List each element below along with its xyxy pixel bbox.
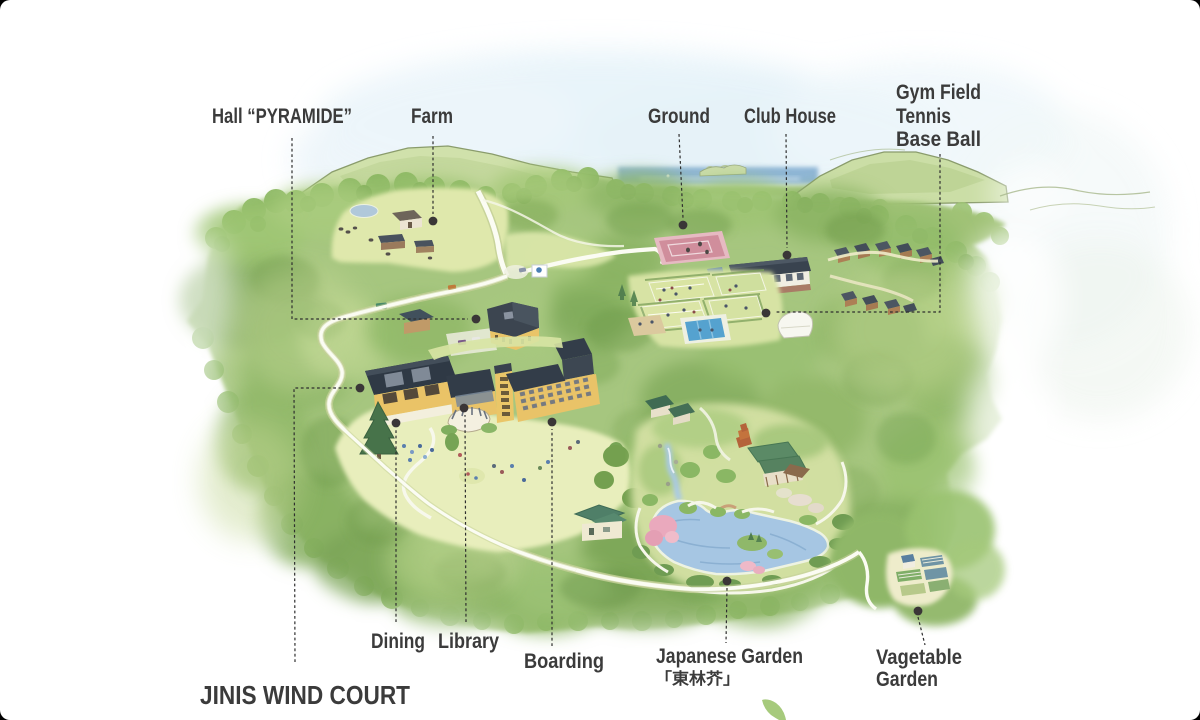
svg-text:Tennis: Tennis — [896, 105, 951, 128]
svg-text:Vagetable: Vagetable — [876, 646, 962, 669]
svg-text:JINIS WIND COURT: JINIS WIND COURT — [200, 680, 410, 710]
svg-text:Library: Library — [438, 630, 499, 653]
svg-text:Boarding: Boarding — [524, 650, 604, 673]
svg-text:Dining: Dining — [371, 630, 425, 653]
svg-text:Gym Field: Gym Field — [896, 81, 981, 104]
svg-text:Club House: Club House — [744, 105, 836, 128]
svg-text:Base Ball: Base Ball — [896, 128, 981, 151]
svg-text:Garden: Garden — [876, 668, 938, 691]
svg-text:Farm: Farm — [411, 105, 453, 128]
svg-text:Japanese Garden: Japanese Garden — [656, 645, 803, 668]
svg-text:Ground: Ground — [648, 105, 710, 128]
svg-text:「東林芥」: 「東林芥」 — [655, 669, 740, 688]
svg-text:Hall “PYRAMIDE”: Hall “PYRAMIDE” — [212, 105, 352, 128]
